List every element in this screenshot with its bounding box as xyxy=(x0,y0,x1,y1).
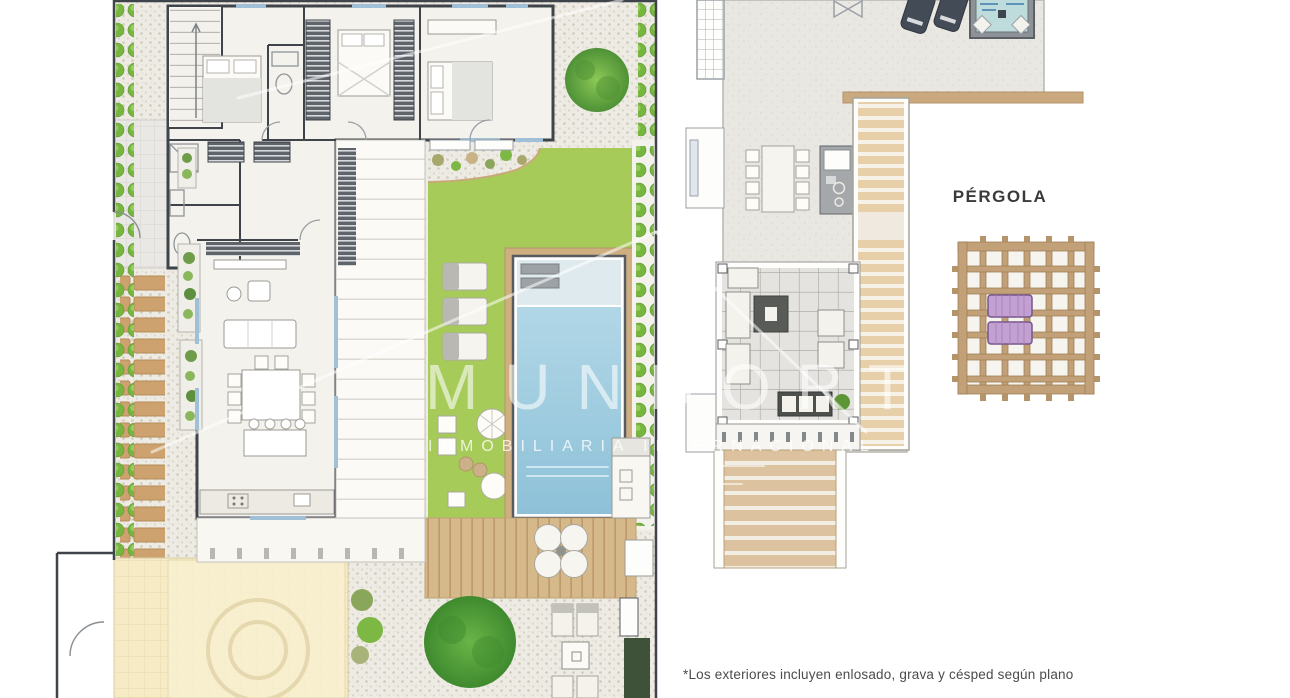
watermark-brand: MUNDORT xyxy=(425,350,933,424)
pergola-label: PÉRGOLA xyxy=(930,187,1070,207)
hedge-left xyxy=(116,4,134,556)
wood-deck xyxy=(425,518,636,598)
dresser xyxy=(428,20,496,34)
deck-steps xyxy=(714,450,846,568)
dark-hedge xyxy=(624,638,650,698)
ground-floor-plan xyxy=(57,0,656,698)
bed xyxy=(338,30,390,96)
kitchen-counter xyxy=(200,490,334,514)
bush-icon xyxy=(351,646,369,664)
side-door-swing xyxy=(70,622,104,656)
sofa xyxy=(726,292,750,338)
garden-step xyxy=(430,140,470,150)
garden-step xyxy=(475,140,513,150)
trellis xyxy=(697,0,724,79)
bush-icon xyxy=(357,617,383,643)
slat-screen xyxy=(338,148,356,266)
jacuzzi xyxy=(970,0,1034,38)
hedge-top-right xyxy=(638,2,656,136)
south-terrace xyxy=(197,518,425,562)
armchair xyxy=(818,310,844,336)
bed xyxy=(203,56,261,122)
footnote: *Los exteriores incluyen enlosado, grava… xyxy=(683,667,1073,682)
floorplan-sheet: MUNDORT INMOBILIARIA INTERNACIONAL PÉRGO… xyxy=(0,0,1290,698)
kitchen-island xyxy=(244,430,306,456)
dining-table xyxy=(242,370,300,420)
tree-icon xyxy=(424,596,516,688)
gate-post xyxy=(620,598,638,636)
pergola-detail xyxy=(952,236,1100,401)
outdoor-kitchen xyxy=(820,146,854,214)
bush-icon xyxy=(351,589,373,611)
watermark-tagline: INMOBILIARIA INTERNACIONAL xyxy=(428,438,877,456)
sofa xyxy=(224,320,296,348)
patio-tiles xyxy=(114,558,348,698)
lawn-loungers xyxy=(443,263,487,360)
floorplan-canvas xyxy=(0,0,1290,698)
tree-icon xyxy=(565,48,629,112)
tv-wall xyxy=(206,242,300,256)
